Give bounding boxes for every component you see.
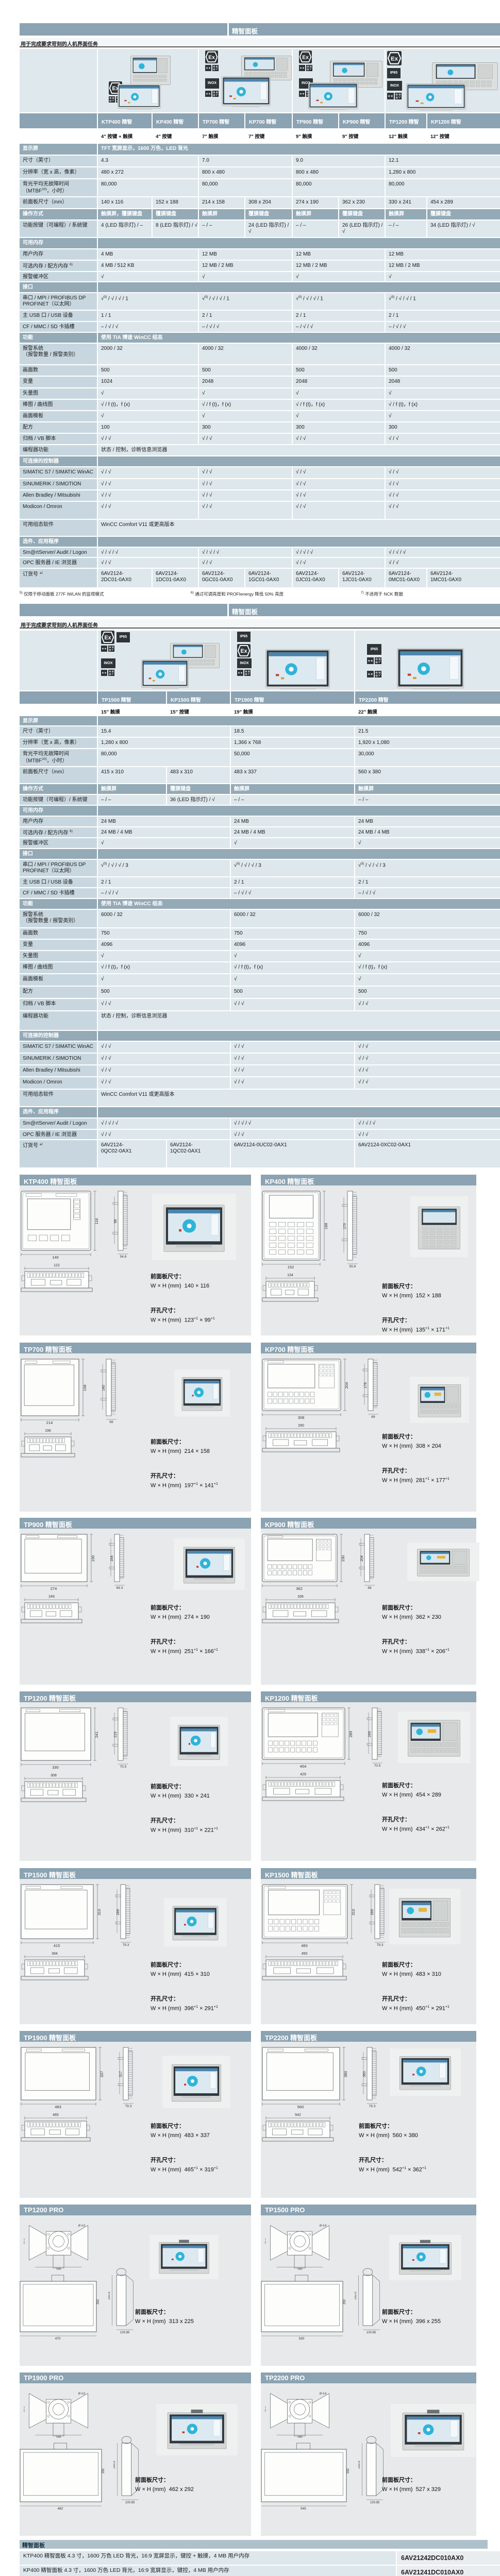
svg-text:155: 155	[56, 2268, 61, 2270]
svg-text:483: 483	[301, 1943, 308, 1948]
svg-text:450: 450	[302, 1952, 308, 1956]
svg-text:292: 292	[102, 2468, 105, 2473]
svg-text:253.5: 253.5	[108, 2292, 111, 2300]
svg-text:79.3: 79.3	[377, 1943, 384, 1947]
svg-text:214: 214	[46, 1420, 53, 1425]
svg-text:482: 482	[58, 2507, 63, 2511]
svg-text:470: 470	[55, 2337, 61, 2341]
svg-text:465: 465	[53, 2113, 59, 2117]
svg-text:310: 310	[351, 1909, 356, 1916]
svg-text:253.5: 253.5	[355, 2292, 357, 2300]
svg-text:253.5: 253.5	[113, 2461, 116, 2469]
svg-text:530: 530	[299, 2337, 305, 2341]
svg-text:249: 249	[48, 1595, 55, 1599]
svg-text:310: 310	[97, 1909, 102, 1916]
svg-text:69: 69	[368, 1586, 372, 1590]
svg-text:155: 155	[297, 2268, 303, 2270]
svg-text:360: 360	[363, 2071, 366, 2077]
svg-text:230: 230	[341, 1555, 345, 1562]
svg-text:483: 483	[55, 2105, 61, 2109]
svg-text:330: 330	[52, 1765, 59, 1770]
svg-text:100.85: 100.85	[125, 2501, 135, 2504]
svg-text:308: 308	[298, 1415, 305, 1420]
svg-text:80.5: 80.5	[24, 2239, 26, 2244]
svg-text:79.3: 79.3	[369, 2105, 376, 2108]
svg-text:Ø 4.8: Ø 4.8	[78, 2393, 85, 2396]
svg-text:80.5: 80.5	[265, 2406, 267, 2412]
svg-text:158: 158	[82, 1385, 87, 1392]
svg-text:70.5: 70.5	[374, 1764, 381, 1768]
svg-text:155: 155	[56, 2436, 61, 2438]
svg-text:69: 69	[109, 1420, 113, 1424]
svg-text:Ex: Ex	[241, 648, 247, 654]
svg-text:Ø 4.8: Ø 4.8	[320, 2225, 326, 2228]
svg-text:Ex: Ex	[105, 635, 111, 641]
svg-text:134: 134	[287, 1274, 293, 1277]
svg-text:190: 190	[91, 1555, 95, 1562]
svg-text:545: 545	[301, 2507, 306, 2511]
svg-text:289: 289	[371, 1909, 374, 1916]
svg-text:155: 155	[297, 2436, 303, 2438]
svg-text:55.8: 55.8	[349, 1265, 356, 1268]
svg-text:219: 219	[114, 1732, 118, 1738]
svg-text:292: 292	[343, 2299, 346, 2304]
svg-text:54.8: 54.8	[120, 1255, 127, 1259]
svg-text:204: 204	[360, 1555, 364, 1562]
svg-text:164: 164	[110, 1555, 114, 1562]
svg-text:337: 337	[99, 2071, 104, 2078]
svg-text:Ø 4.8: Ø 4.8	[78, 2225, 85, 2228]
svg-text:116: 116	[94, 1218, 99, 1225]
svg-text:140: 140	[52, 1255, 59, 1260]
svg-text:394: 394	[52, 1952, 58, 1956]
svg-text:140: 140	[102, 1385, 106, 1391]
svg-text:308: 308	[51, 1774, 57, 1777]
svg-text:Ø 4.8: Ø 4.8	[320, 2393, 326, 2396]
svg-text:336: 336	[297, 1595, 304, 1599]
svg-text:80.5: 80.5	[265, 2239, 267, 2244]
svg-text:188: 188	[324, 1223, 328, 1230]
svg-text:178: 178	[364, 1382, 368, 1388]
svg-text:79.3: 79.3	[125, 2105, 132, 2108]
svg-text:100.85: 100.85	[370, 2501, 380, 2504]
svg-text:Ex: Ex	[302, 55, 309, 60]
svg-text:560: 560	[297, 2105, 304, 2109]
svg-text:69: 69	[371, 1415, 375, 1419]
svg-text:380: 380	[343, 2071, 348, 2078]
svg-text:79.3: 79.3	[123, 1943, 129, 1947]
svg-text:Ex: Ex	[391, 56, 398, 62]
svg-text:542: 542	[295, 2113, 301, 2117]
svg-text:Ex: Ex	[208, 55, 215, 60]
svg-text:290: 290	[298, 1424, 304, 1428]
svg-text:415: 415	[54, 1943, 60, 1948]
svg-text:241: 241	[94, 1732, 99, 1738]
svg-text:429: 429	[300, 1773, 306, 1776]
svg-text:253.5: 253.5	[358, 2461, 361, 2469]
svg-text:274: 274	[51, 1586, 57, 1591]
svg-text:292: 292	[347, 2468, 350, 2473]
svg-text:100.85: 100.85	[120, 2331, 130, 2334]
svg-text:289: 289	[116, 1909, 120, 1916]
svg-text:170: 170	[343, 1223, 347, 1229]
svg-text:152: 152	[288, 1265, 294, 1269]
svg-text:292: 292	[97, 2299, 100, 2304]
svg-text:69.3: 69.3	[116, 1586, 123, 1590]
svg-text:98: 98	[114, 1219, 118, 1224]
svg-text:122: 122	[54, 1264, 60, 1267]
svg-text:100.85: 100.85	[366, 2331, 376, 2334]
svg-text:454: 454	[300, 1764, 307, 1769]
svg-text:289: 289	[348, 1731, 353, 1738]
svg-text:70.5: 70.5	[120, 1765, 127, 1769]
svg-text:249: 249	[368, 1731, 372, 1737]
svg-text:80.5: 80.5	[24, 2406, 26, 2412]
svg-text:196: 196	[45, 1429, 51, 1433]
svg-text:204: 204	[344, 1382, 349, 1389]
svg-text:317: 317	[119, 2071, 123, 2077]
svg-text:362: 362	[296, 1586, 303, 1591]
